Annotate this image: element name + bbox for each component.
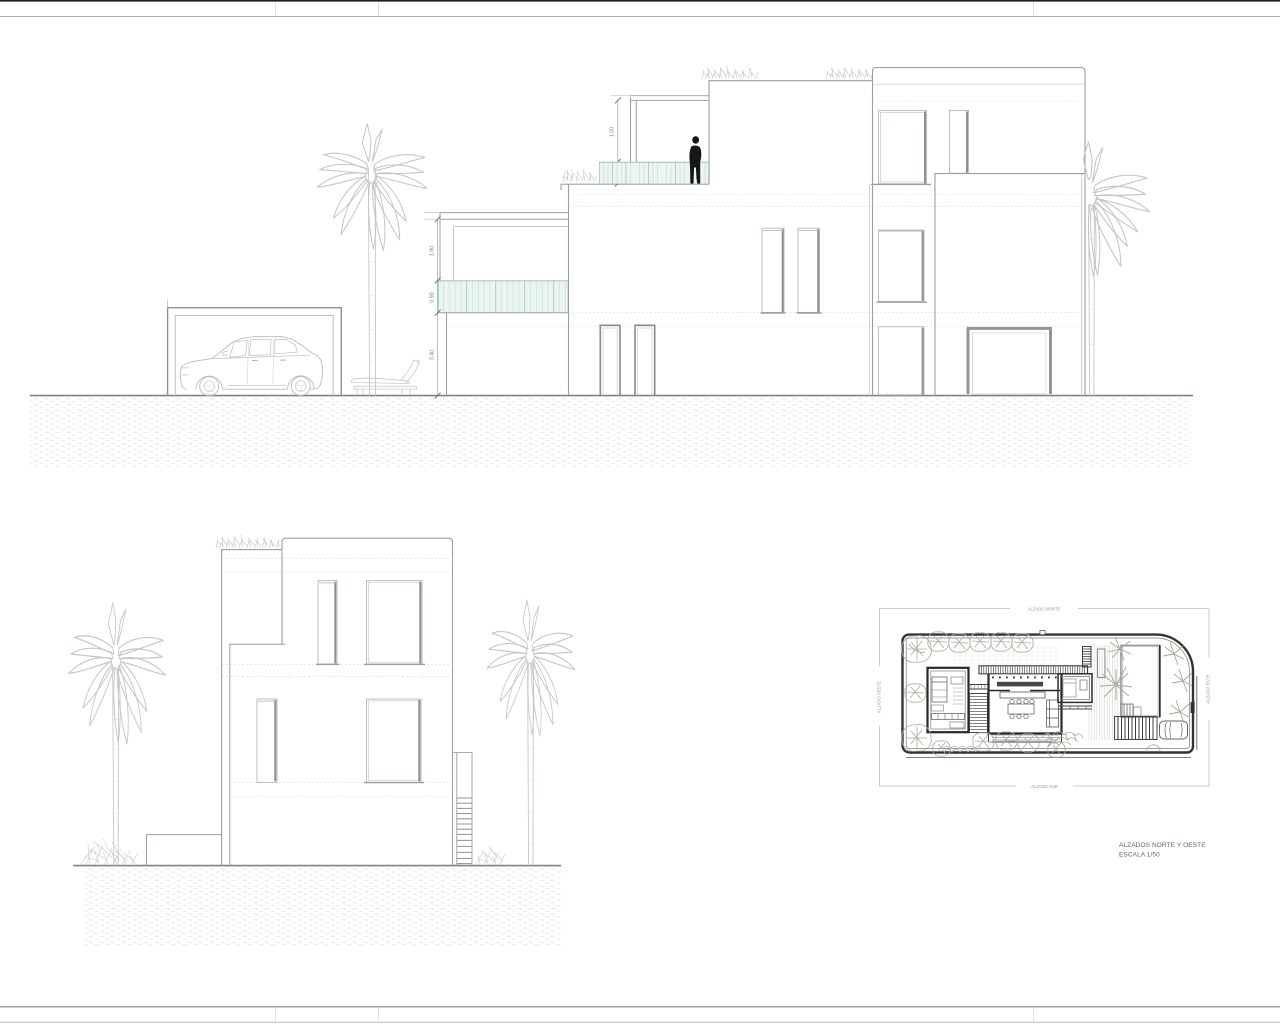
svg-text:ESCALA 1/50: ESCALA 1/50 <box>1119 852 1160 859</box>
svg-text:ALZADO ESTE: ALZADO ESTE <box>1205 674 1210 703</box>
svg-text:ALZADOS NORTE Y OESTE: ALZADOS NORTE Y OESTE <box>1119 842 1206 849</box>
svg-text:ALZADO SUR: ALZADO SUR <box>1031 784 1058 789</box>
svg-text:ALZADO NORTE: ALZADO NORTE <box>1028 606 1061 611</box>
svg-text:1.00: 1.00 <box>610 127 616 137</box>
svg-text:ALZADO OESTE: ALZADO OESTE <box>876 681 881 713</box>
svg-text:1.80: 1.80 <box>429 246 435 257</box>
svg-text:3.40: 3.40 <box>429 350 435 361</box>
svg-text:0.90: 0.90 <box>429 292 435 303</box>
